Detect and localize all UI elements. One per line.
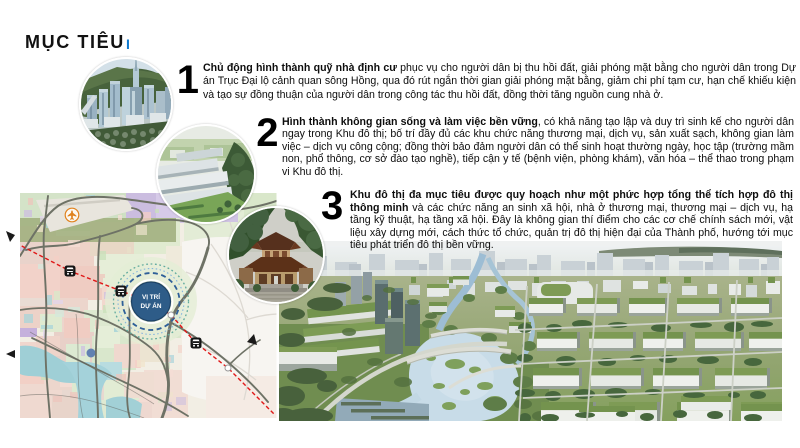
svg-text:DỰ ÁN: DỰ ÁN — [141, 301, 162, 310]
svg-text:VỊ TRÍ: VỊ TRÍ — [142, 292, 160, 301]
